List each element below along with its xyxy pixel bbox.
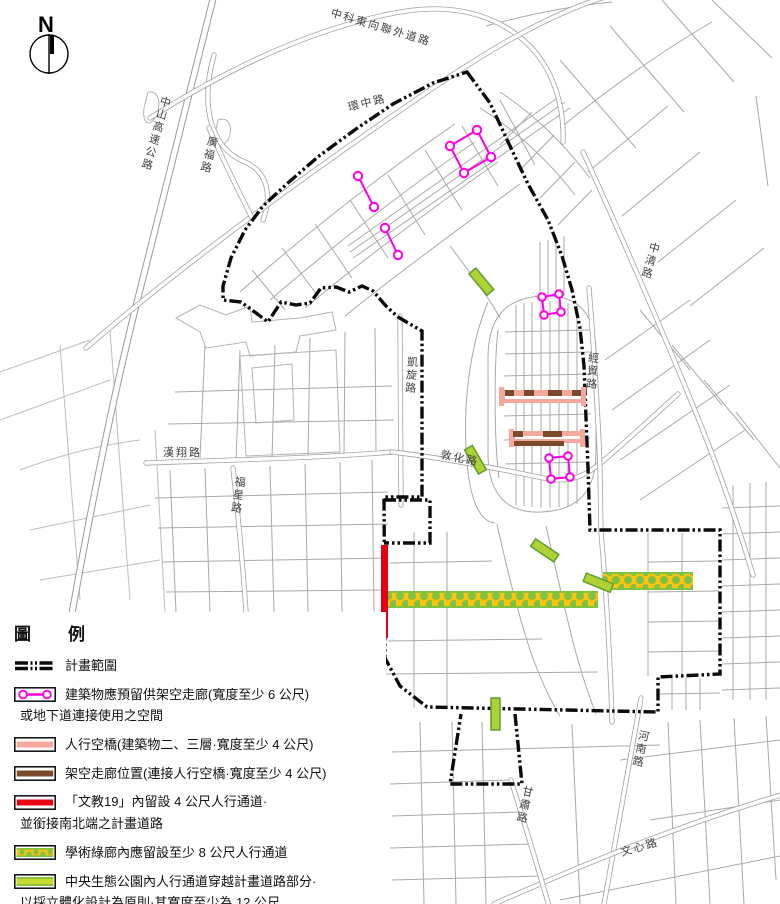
legend-item-corridor-reserve: 建築物應預留供架空走廊(寬度至少 6 公尺) 或地下道連接使用之空間	[14, 687, 386, 725]
road-label-hanxiang: 漢翔路	[163, 445, 202, 459]
north-compass: N	[30, 12, 68, 74]
legend: 圖 例 計畫範圍 建築物應預留供架空走廊(寬度至少 6 公尺) 或地下道連接使用…	[0, 612, 386, 904]
road-label-gansu: 甘肅路	[514, 784, 534, 825]
corridor-square-2	[538, 290, 565, 319]
corridor-link-1	[354, 172, 378, 211]
academic-green-corridor-east	[603, 572, 693, 590]
road-label-zhongqing: 中清路	[638, 240, 661, 281]
road-label-guangfu: 廣福路	[198, 133, 220, 175]
plan-boundary-swatch	[14, 658, 56, 673]
legend-item-wenjiao19: 「文教19」內留設 4 公尺人行通道· 並銜接南北端之計畫道路	[14, 794, 386, 832]
compass-needle	[50, 36, 54, 54]
road-label-zhongshan-fwy: 中山高速公路	[139, 94, 173, 173]
skybridge-swatch	[14, 737, 56, 752]
legend-item-plan-boundary: 計畫範圍	[14, 658, 386, 674]
legend-item-skybridge: 人行空橋(建築物二、三層·寬度至少 4 公尺)	[14, 737, 386, 753]
legend-item-elevated-walkway: 架空走廊位置(連接人行空橋·寬度至少 4 公尺)	[14, 766, 386, 782]
road-label-kaixuan: 凱旋路	[403, 355, 418, 395]
elevated-walkway-swatch	[14, 766, 56, 781]
corridor-link-2	[381, 224, 402, 259]
legend-item-academic-corridor: 學術綠廊內應留設至少 8 公尺人行通道	[14, 845, 386, 861]
road-label-wenxin: 文心路	[619, 835, 660, 859]
academic-green-corridor-west	[388, 591, 598, 608]
academic-corridor-swatch	[14, 845, 56, 860]
corridor-reserve-swatch	[14, 687, 56, 702]
legend-title: 圖 例	[14, 620, 386, 645]
skybridge-north	[499, 387, 586, 406]
skybridge-south	[509, 429, 585, 447]
planning-map-page: 中科東向聯外道路 環中路 中山高速公路 廣福路 中清路 凱旋路 經貿路 敦化路 …	[0, 0, 780, 904]
wenjiao19-swatch	[14, 795, 56, 810]
north-label: N	[38, 12, 54, 37]
eco-park-swatch	[14, 874, 56, 889]
legend-item-eco-park: 中央生態公園內人行通道穿越計畫道路部分· 以採立體化設計為原則·其寬度至少為 1…	[14, 874, 386, 904]
road-label-fuxing: 福星路	[229, 474, 247, 516]
